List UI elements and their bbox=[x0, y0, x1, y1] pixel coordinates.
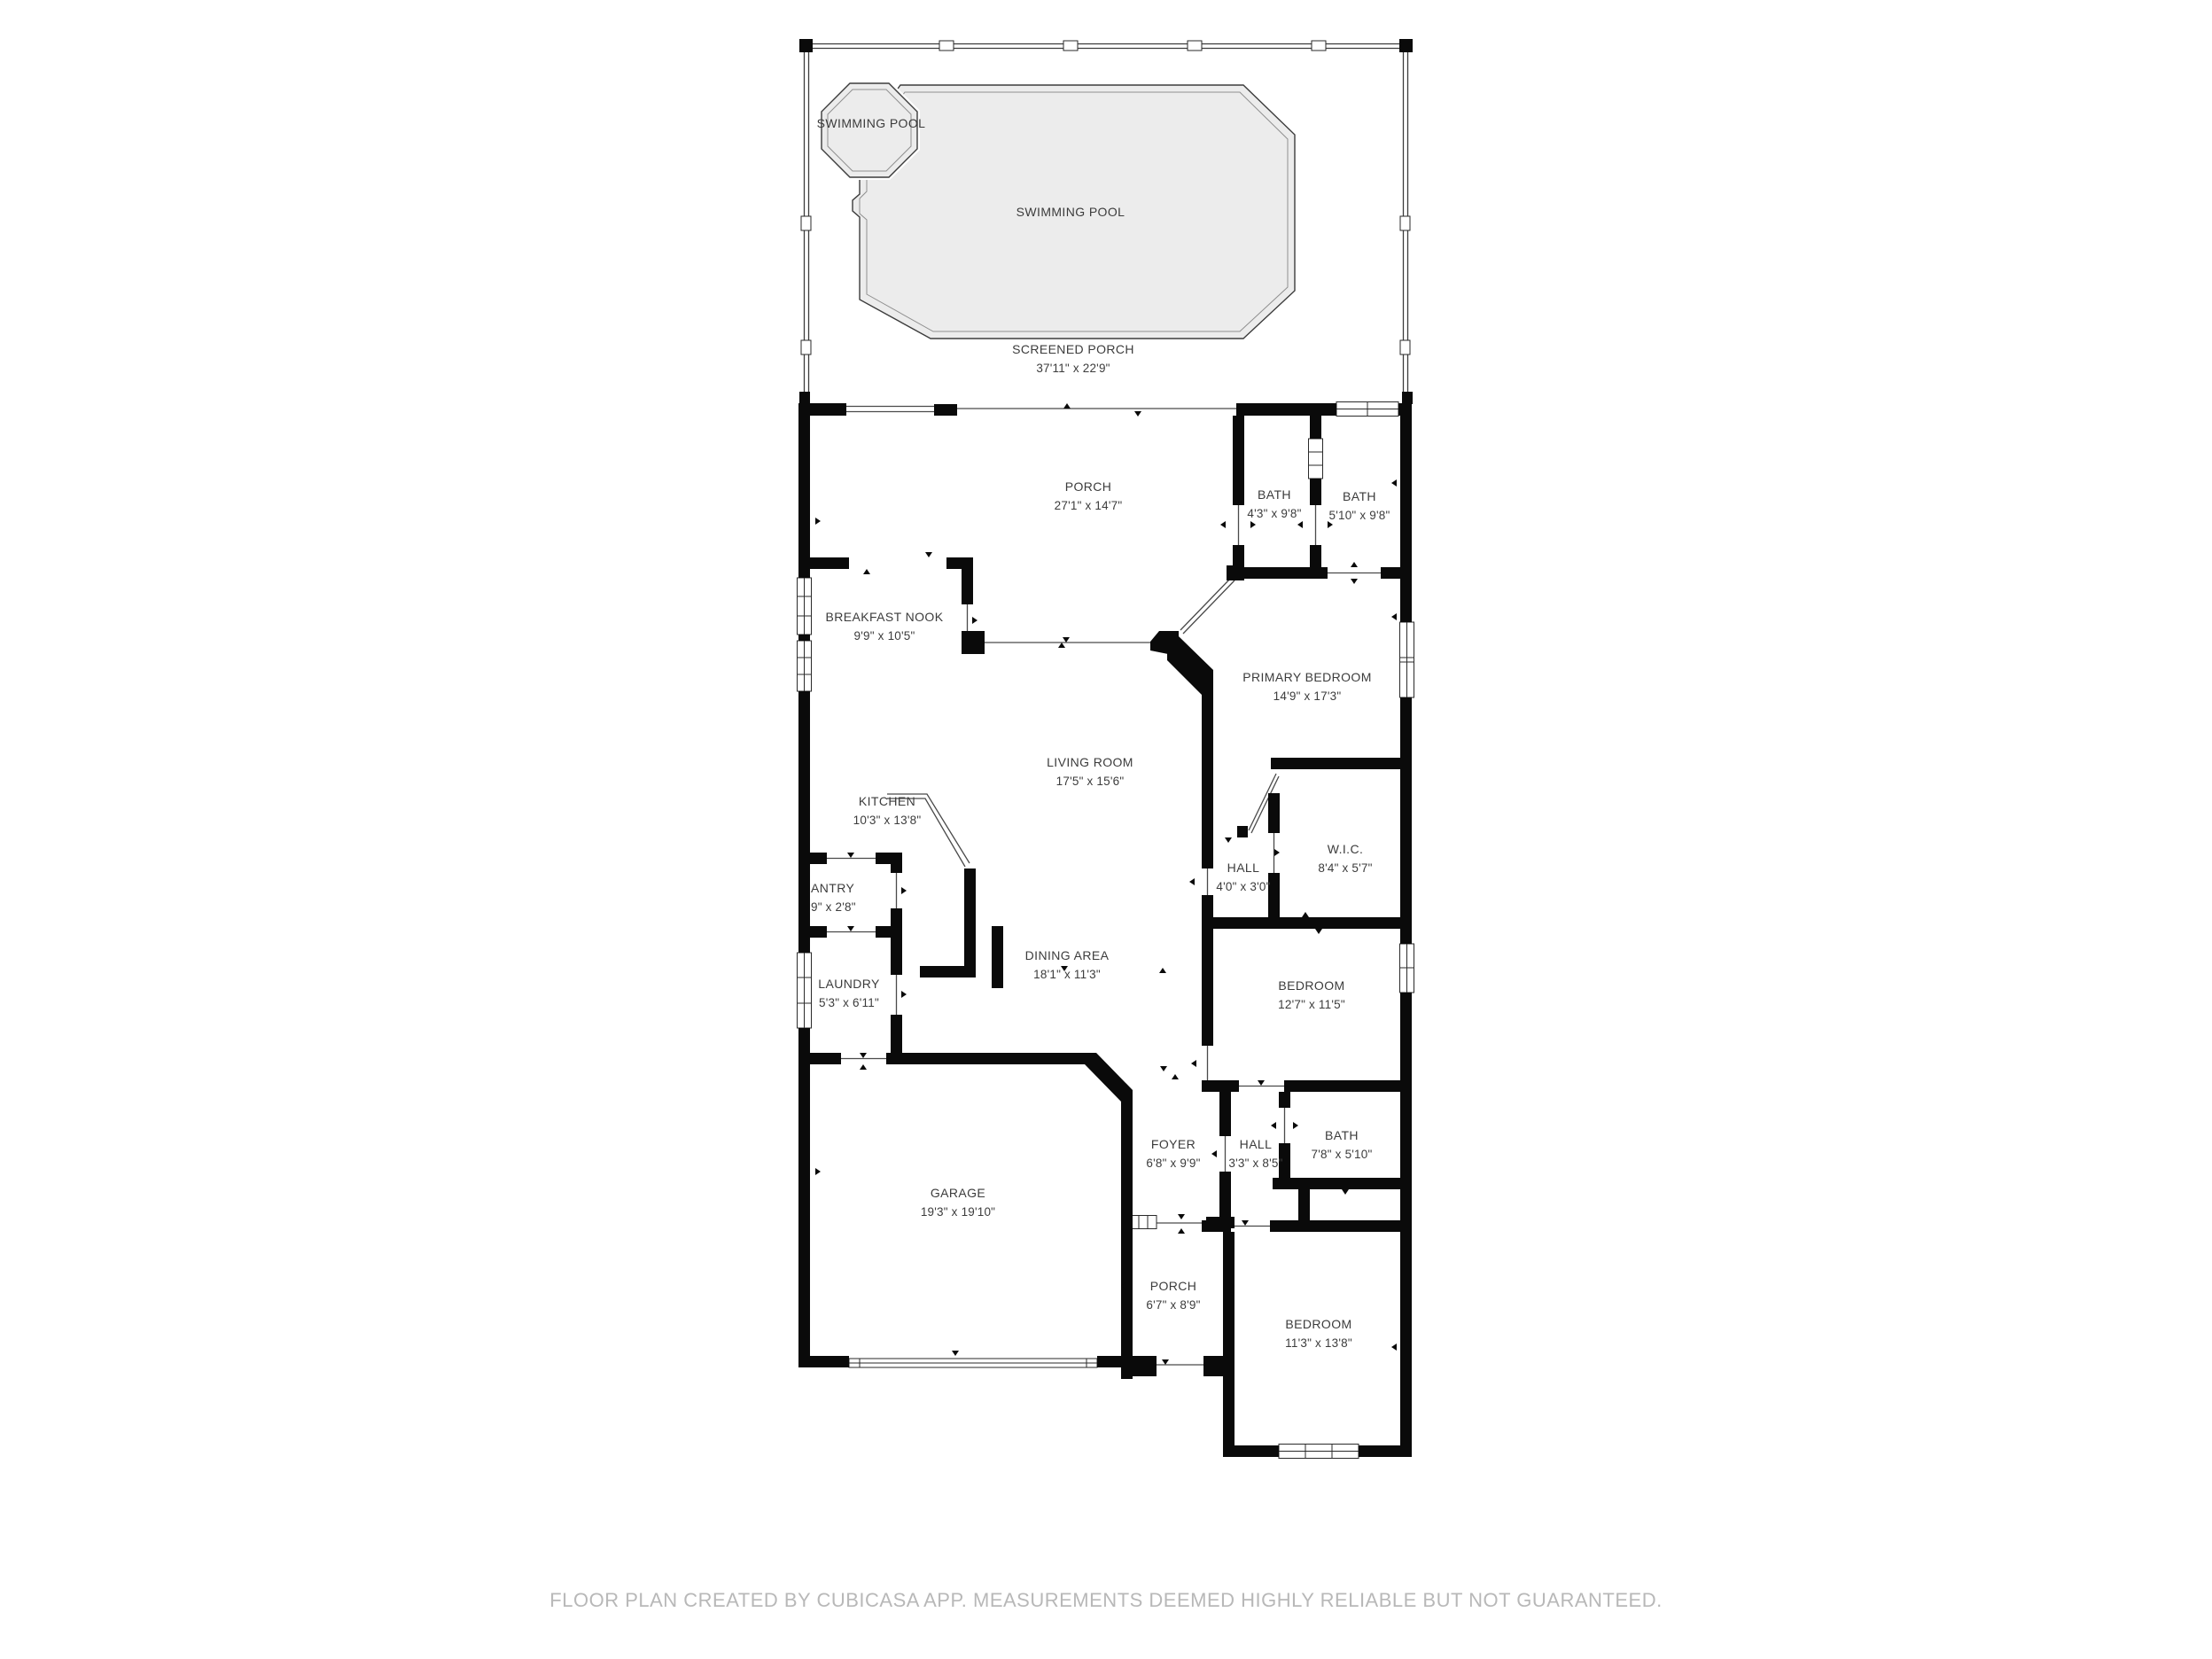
room-label-bedroom-bottom: BEDROOM11'3" x 13'8" bbox=[1285, 1315, 1352, 1352]
room-label-laundry: LAUNDRY5'3" x 6'11" bbox=[818, 975, 879, 1012]
window-foyer-sidelight bbox=[1130, 1216, 1157, 1229]
room-label-breakfast-nook: BREAKFAST NOOK9'9" x 10'5" bbox=[826, 608, 944, 645]
room-label-pantry: ANTRY9" x 2'8" bbox=[811, 879, 856, 916]
room-label-hall-2: HALL3'3" x 8'5" bbox=[1228, 1135, 1282, 1172]
room-label-swimming-pool: SWIMMING POOL bbox=[1016, 203, 1125, 222]
window-bath-divider bbox=[1309, 439, 1323, 479]
window-laundry bbox=[798, 953, 812, 1028]
room-label-kitchen: KITCHEN10'3" x 13'8" bbox=[853, 792, 922, 829]
room-label-porch-bottom: PORCH6'7" x 8'9" bbox=[1146, 1277, 1200, 1314]
room-label-foyer: FOYER6'8" x 9'9" bbox=[1146, 1135, 1200, 1172]
window-top-bath2 bbox=[1336, 402, 1398, 417]
window-nook-1 bbox=[798, 578, 812, 635]
room-label-swimming-pool-spa: SWIMMING POOL bbox=[817, 114, 926, 133]
room-label-hall-primary: HALL4'0" x 3'0" bbox=[1216, 859, 1270, 896]
room-label-bath-1: BATH4'3" x 9'8" bbox=[1247, 486, 1301, 523]
room-label-porch-top: PORCH27'1" x 14'7" bbox=[1055, 478, 1123, 515]
floor-plan: SWIMMING POOL SWIMMING POOL SCREENED POR… bbox=[796, 35, 1416, 1480]
room-label-bath-2: BATH5'10" x 9'8" bbox=[1329, 487, 1390, 525]
garage-door bbox=[849, 1359, 1097, 1367]
room-label-living-room: LIVING ROOM17'5" x 15'6" bbox=[1047, 753, 1133, 791]
room-label-wic: W.I.C.8'4" x 5'7" bbox=[1318, 840, 1372, 877]
window-bedroom-bottom bbox=[1279, 1445, 1359, 1459]
room-label-bedroom-mid: BEDROOM12'7" x 11'5" bbox=[1278, 977, 1345, 1014]
footer-disclaimer: FLOOR PLAN CREATED BY CUBICASA APP. MEAS… bbox=[0, 1589, 2212, 1612]
room-label-dining-area: DINING AREA18'1" x 11'3" bbox=[1025, 946, 1110, 984]
window-nook-2 bbox=[798, 641, 812, 691]
window-bedroom-mid bbox=[1400, 944, 1414, 993]
room-label-primary-bedroom: PRIMARY BEDROOM14'9" x 17'3" bbox=[1242, 668, 1372, 705]
room-label-screened-porch: SCREENED PORCH37'11" x 22'9" bbox=[1012, 340, 1134, 378]
room-label-bath-3: BATH7'8" x 5'10" bbox=[1312, 1126, 1373, 1164]
floor-plan-page: { "colors": { "wall": "#0a0a0a", "pool_f… bbox=[0, 0, 2212, 1659]
room-label-garage: GARAGE19'3" x 19'10" bbox=[921, 1184, 995, 1221]
window-primary-bedroom bbox=[1400, 622, 1414, 697]
